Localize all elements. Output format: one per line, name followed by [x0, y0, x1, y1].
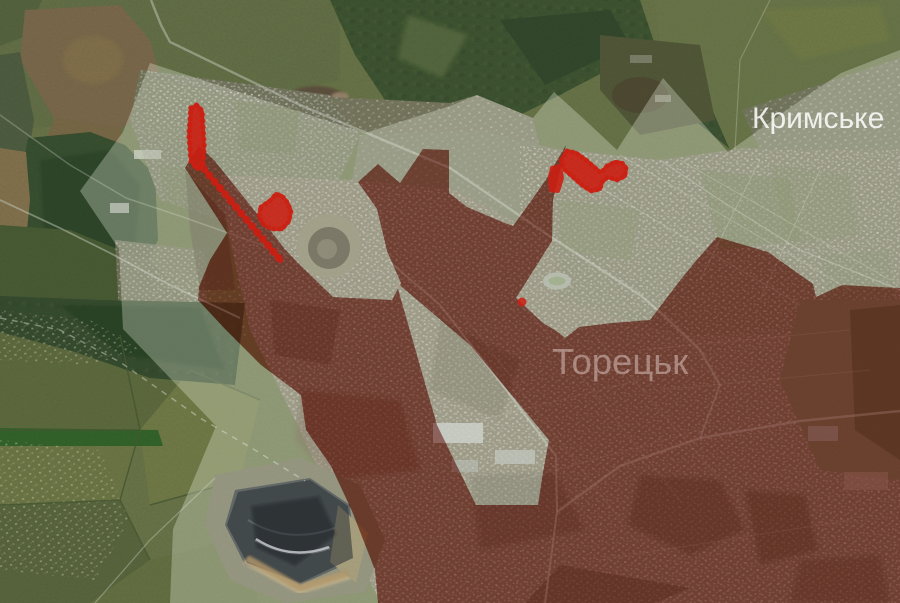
- svg-text:Торецьк: Торецьк: [552, 341, 689, 382]
- svg-text:Кримське: Кримське: [752, 102, 884, 135]
